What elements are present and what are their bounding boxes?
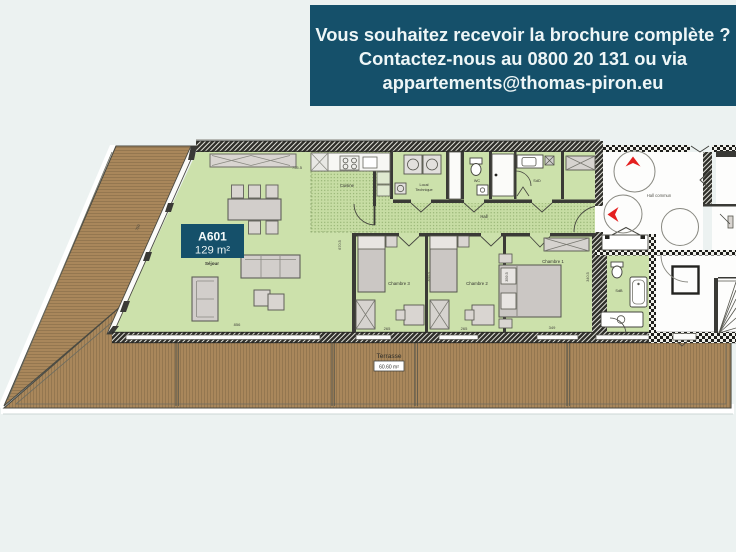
svg-text:A601: A601 <box>198 230 227 244</box>
svg-text:755.5: 755.5 <box>292 165 303 170</box>
svg-text:Contactez-nous au 0800 20 131: Contactez-nous au 0800 20 131 ou via <box>359 48 688 69</box>
svg-text:340.5: 340.5 <box>586 272 590 282</box>
svg-text:359.5: 359.5 <box>505 272 509 282</box>
svg-text:265: 265 <box>384 326 391 331</box>
svg-text:670.5: 670.5 <box>338 240 342 250</box>
svg-text:Séjour: Séjour <box>205 261 219 266</box>
svg-text:Chambre 3: Chambre 3 <box>388 281 410 286</box>
svg-text:Cuisine: Cuisine <box>340 183 355 188</box>
svg-text:856: 856 <box>234 322 241 327</box>
svg-text:Chambre 1: Chambre 1 <box>542 259 564 264</box>
svg-text:359.5: 359.5 <box>427 272 431 282</box>
svg-text:SdD: SdD <box>533 179 541 183</box>
svg-text:SdB: SdB <box>615 289 623 293</box>
svg-text:Local: Local <box>419 183 428 187</box>
svg-text:Hall commun: Hall commun <box>647 193 672 198</box>
svg-text:129 m²: 129 m² <box>195 245 230 257</box>
svg-text:WC: WC <box>474 179 481 183</box>
svg-text:Technique: Technique <box>415 188 432 192</box>
svg-text:Terrasse: Terrasse <box>377 353 402 360</box>
svg-text:60.60 m²: 60.60 m² <box>379 365 399 371</box>
svg-text:265: 265 <box>461 326 468 331</box>
svg-text:appartements@thomas-piron.eu: appartements@thomas-piron.eu <box>383 72 664 93</box>
svg-text:Vous souhaitez recevoir la bro: Vous souhaitez recevoir la brochure comp… <box>315 24 730 45</box>
svg-text:Chambre 2: Chambre 2 <box>466 281 488 286</box>
svg-text:349: 349 <box>549 325 556 330</box>
svg-text:Hall: Hall <box>480 214 487 219</box>
